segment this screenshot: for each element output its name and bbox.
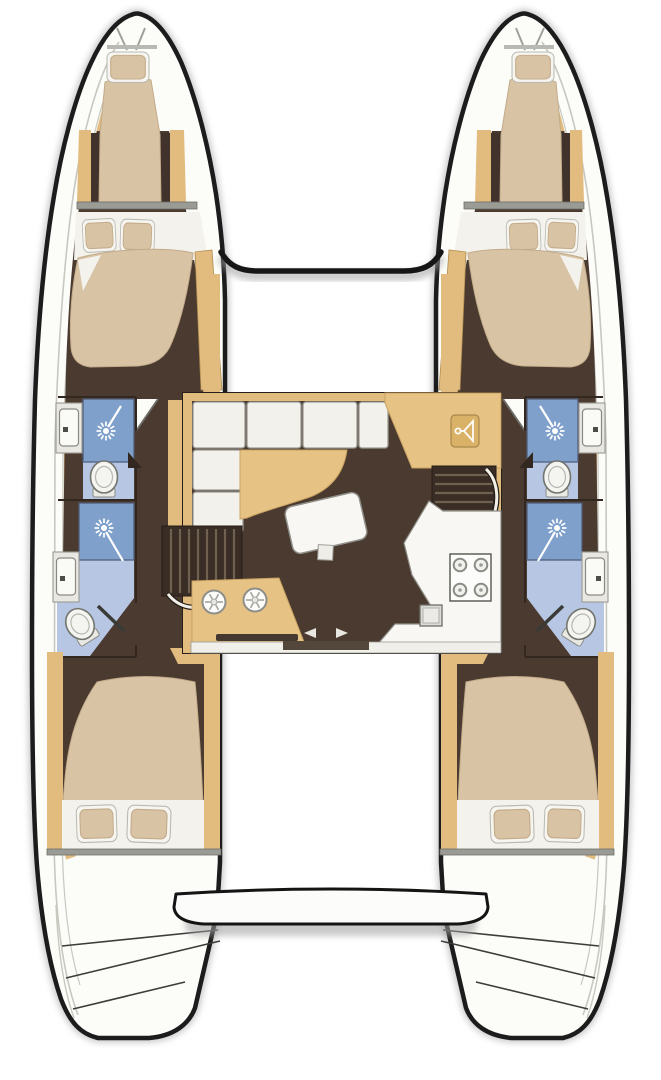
pillow [82, 218, 116, 252]
cabin-aft-bulkhead [47, 849, 221, 855]
hanger-icon [451, 415, 479, 447]
sink-icon [53, 552, 79, 602]
forward-crossbeam [221, 252, 441, 276]
forepeak-mattress [99, 77, 161, 202]
toilet-icon [91, 461, 118, 497]
pillow [120, 219, 155, 254]
table-leg-block [318, 545, 334, 561]
salon [162, 393, 501, 653]
crossbeam-bar [221, 252, 441, 271]
stove-burner-icon [475, 559, 488, 572]
catamaran-floorplan [0, 0, 661, 1080]
settee-cushion [247, 402, 301, 448]
forepeak-pillow [107, 52, 149, 82]
stove [450, 554, 491, 601]
pillow [127, 805, 171, 843]
pillow [76, 805, 117, 843]
settee-cushion [359, 402, 388, 448]
galley-sink [203, 591, 226, 614]
settee-cushion [303, 402, 357, 448]
bow-bulkhead [107, 45, 157, 49]
corridor-trim [168, 400, 182, 530]
aft-crossbeam [174, 889, 488, 936]
berth-side-board-left [77, 130, 91, 203]
cabin-side-trim-left [47, 652, 63, 852]
stove-burner-icon [475, 584, 488, 597]
galley-sink [244, 589, 267, 612]
salon-trim-left [183, 393, 192, 653]
shower-cubicle [79, 503, 134, 560]
towel-bar [216, 634, 298, 641]
forepeak-bulkhead [77, 202, 197, 209]
aft-beam-bar [174, 889, 488, 924]
cabin-side-trim-right [204, 652, 220, 852]
sink-icon [56, 403, 82, 453]
berth-side-board-right [170, 130, 186, 203]
stove-burner-icon [454, 584, 467, 597]
stove-burner-icon [454, 559, 467, 572]
settee-cushion [193, 450, 243, 490]
catamaran-floorplan-canvas [0, 0, 661, 1080]
sliding-door-track [283, 641, 369, 650]
settee-cushion [193, 402, 245, 448]
counter-sink [420, 605, 442, 626]
